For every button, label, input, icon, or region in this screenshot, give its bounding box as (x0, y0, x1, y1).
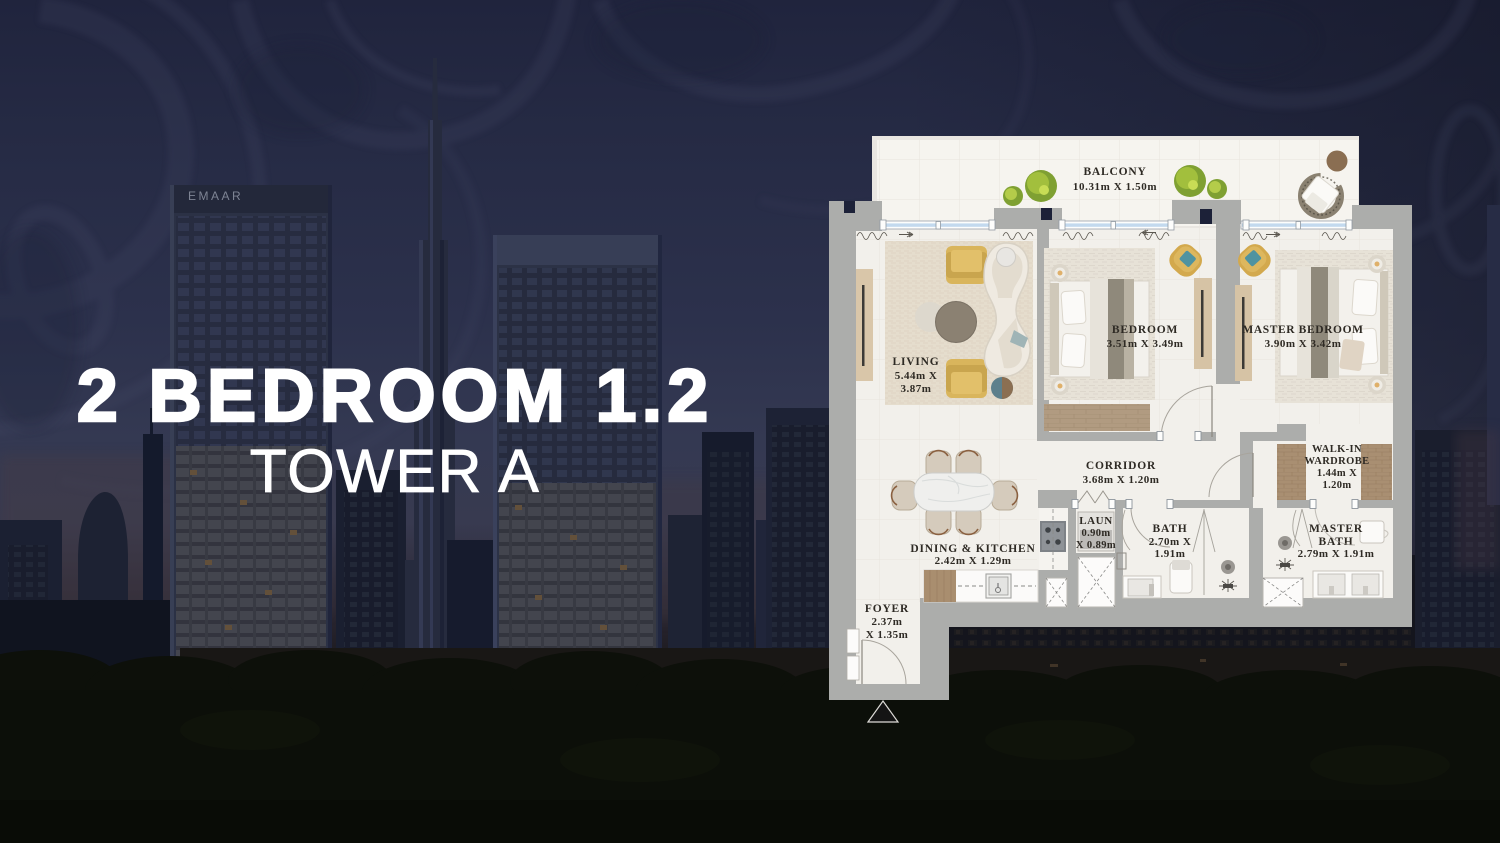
svg-text:1.44m X: 1.44m X (1317, 468, 1357, 479)
svg-text:WARDROBE: WARDROBE (1304, 456, 1369, 467)
svg-text:X 1.35m: X 1.35m (866, 629, 909, 641)
svg-text:2.70m X: 2.70m X (1149, 536, 1192, 548)
svg-text:3.68m X 1.20m: 3.68m X 1.20m (1083, 474, 1160, 486)
svg-text:BALCONY: BALCONY (1083, 166, 1146, 178)
svg-text:3.51m X 3.49m: 3.51m X 3.49m (1107, 338, 1184, 350)
svg-text:FOYER: FOYER (865, 603, 909, 615)
svg-text:10.31m X 1.50m: 10.31m X 1.50m (1073, 181, 1157, 193)
svg-text:3.90m X 3.42m: 3.90m X 3.42m (1265, 338, 1342, 350)
svg-text:1.91m: 1.91m (1155, 548, 1186, 560)
svg-text:2.37m: 2.37m (872, 616, 903, 628)
svg-text:1.20m: 1.20m (1322, 480, 1351, 491)
svg-text:LIVING: LIVING (893, 356, 940, 368)
svg-text:MASTER BEDROOM: MASTER BEDROOM (1242, 324, 1363, 336)
svg-text:CORRIDOR: CORRIDOR (1086, 460, 1156, 472)
svg-text:MASTER: MASTER (1309, 523, 1363, 535)
svg-text:LAUN: LAUN (1079, 515, 1113, 527)
svg-text:WALK-IN: WALK-IN (1312, 444, 1362, 455)
svg-text:2.42m X 1.29m: 2.42m X 1.29m (935, 555, 1012, 567)
svg-text:BATH: BATH (1153, 523, 1188, 535)
svg-text:5.44m X: 5.44m X (895, 370, 938, 382)
svg-text:DINING & KITCHEN: DINING & KITCHEN (910, 543, 1035, 555)
svg-text:0.90m: 0.90m (1081, 528, 1110, 539)
svg-text:X 0.89m: X 0.89m (1076, 540, 1116, 551)
svg-text:2.79m X 1.91m: 2.79m X 1.91m (1298, 548, 1375, 560)
svg-text:BATH: BATH (1319, 536, 1354, 548)
svg-text:3.87m: 3.87m (901, 383, 932, 395)
svg-text:BEDROOM: BEDROOM (1112, 324, 1178, 336)
